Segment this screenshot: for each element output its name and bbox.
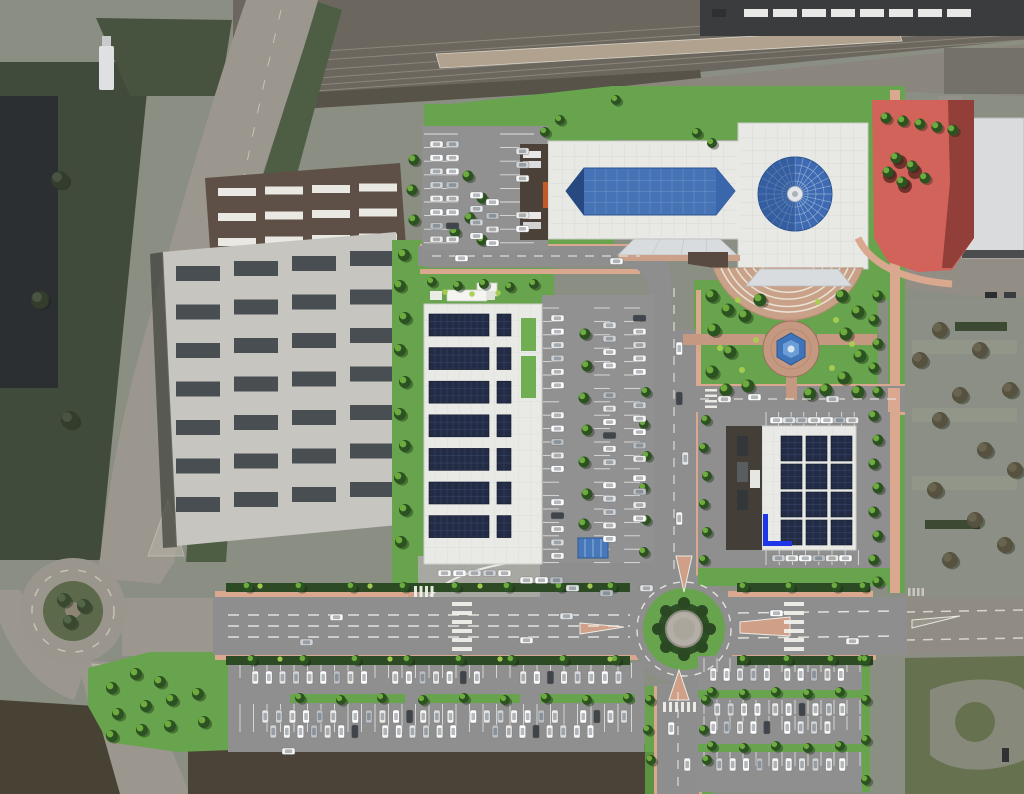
road-markings-xwalk	[669, 702, 672, 712]
bare-trees	[913, 353, 922, 362]
bare-trees	[1008, 463, 1017, 472]
vehicles-cars	[554, 413, 561, 417]
landscape-trees	[580, 329, 586, 335]
vehicles-cars	[489, 228, 496, 232]
landscape-circle	[788, 346, 795, 353]
green-lobe-trees	[141, 701, 148, 708]
garden-trees	[820, 384, 827, 391]
green-lobe-trees	[131, 669, 138, 676]
vehicles-cars	[606, 393, 613, 397]
vehicles-cars	[383, 728, 387, 735]
green-lobe-trees	[193, 689, 200, 696]
landscape-trees	[873, 291, 879, 297]
bare-trees	[968, 513, 977, 522]
landscape-trees	[862, 696, 868, 702]
landscape-trees	[898, 116, 904, 122]
buildings-rect	[737, 436, 748, 456]
vehicles-cars	[411, 728, 415, 735]
vehicles-cars	[485, 713, 489, 720]
bare-trees	[998, 538, 1007, 547]
vehicles-cars	[606, 510, 613, 514]
green-lobe-trees	[107, 731, 114, 738]
vehicles-cars	[773, 761, 777, 768]
satellite-ground-trees	[58, 594, 66, 602]
vehicles-cars	[812, 724, 816, 731]
vehicles-cars	[435, 713, 439, 720]
vehicles-cars	[434, 674, 438, 681]
vehicles-cars	[836, 418, 843, 422]
road-markings-xwalk	[705, 395, 717, 398]
vehicles-cars	[407, 674, 411, 681]
satellite-ground-xwalk	[917, 588, 920, 596]
vehicles-cars	[554, 316, 561, 320]
vehicles-cars	[433, 238, 440, 242]
landscape-trees	[530, 280, 536, 286]
sawtooth-roof-slots	[350, 405, 394, 420]
green-lobe-trees	[165, 721, 172, 728]
landscape-trees	[948, 125, 954, 131]
vehicles-cars	[381, 713, 385, 720]
landscape-trees	[612, 96, 618, 102]
vehicles-cars	[554, 514, 561, 518]
vehicles-cars	[473, 207, 480, 211]
crosswalk	[452, 620, 472, 624]
landscape-trees	[883, 167, 889, 173]
vehicles-cars	[765, 671, 769, 678]
vehicles-cars	[800, 761, 804, 768]
landscape-trees	[395, 409, 402, 416]
landscape-trees	[700, 726, 706, 732]
sawtooth-roof-slots	[292, 487, 336, 502]
vehicles-cars	[752, 671, 756, 678]
vehicles-cars	[677, 345, 681, 352]
trailer-row	[802, 9, 826, 17]
vehicles-cars	[433, 142, 440, 146]
vehicles-cars	[304, 713, 308, 720]
vehicles-cars	[606, 364, 613, 368]
vehicles-cars	[299, 728, 303, 735]
vehicles-cars	[554, 427, 561, 431]
vehicles-cars	[744, 761, 748, 768]
green-lobe-trees	[199, 717, 206, 724]
vehicles-cars	[785, 671, 789, 678]
buildings-rect	[430, 291, 442, 300]
bridge-truck	[99, 46, 114, 90]
vehicles-cars	[554, 357, 561, 361]
landscape-bushes	[735, 297, 741, 303]
vehicles-cars	[433, 170, 440, 174]
bare-trees	[973, 343, 982, 352]
vehicles-cars	[339, 728, 343, 735]
vehicles-cars	[636, 444, 643, 448]
garden-trees	[838, 372, 845, 379]
vehicles-cars	[267, 674, 271, 681]
buildings-rect	[737, 490, 748, 510]
vehicles-cars	[738, 724, 742, 731]
vehicles-cars	[449, 224, 456, 228]
garden-trees	[706, 366, 713, 373]
vehicles-cars	[606, 434, 613, 438]
sawtooth-roof-slots	[176, 305, 220, 320]
landscape-trees	[508, 656, 513, 662]
landscape-trees	[395, 345, 402, 352]
vehicles-cars	[606, 447, 613, 451]
landscape-trees	[337, 696, 343, 702]
landscape-trees	[862, 736, 868, 742]
garden-trees	[804, 388, 811, 395]
road-markings-xwalk	[425, 586, 428, 597]
vehicles-cars	[486, 571, 493, 575]
vehicles-cars	[321, 674, 325, 681]
landscape-bushes	[477, 583, 482, 588]
sawtooth-skylights	[312, 210, 350, 218]
landscape-trees	[862, 656, 868, 662]
vehicles-cars	[683, 455, 687, 462]
vehicles-cars	[554, 467, 561, 471]
landscape-trees	[644, 726, 650, 732]
roads-blobs	[696, 641, 708, 653]
vehicles-cars	[800, 706, 804, 713]
landscape-trees	[907, 161, 913, 167]
landscape-trees	[409, 215, 415, 221]
garden-trees	[724, 346, 731, 353]
landscape-trees	[407, 185, 413, 191]
vehicles-cars	[581, 713, 585, 720]
vehicles-cars	[499, 713, 503, 720]
vehicles-cars	[721, 397, 728, 401]
garden-trees	[708, 324, 715, 331]
landscape-trees	[804, 744, 810, 750]
landscape-trees	[296, 583, 302, 589]
vehicles-cars	[449, 713, 453, 720]
landscape-bushes	[495, 290, 501, 296]
vehicles-cars	[294, 674, 298, 681]
landscape-trees	[463, 171, 469, 177]
road-markings-xwalk	[705, 400, 717, 403]
sawtooth-roof-slots	[292, 372, 336, 387]
sawtooth-roof-slots	[176, 497, 220, 512]
garden-trees	[854, 350, 861, 357]
vehicles-cars	[785, 724, 789, 731]
vehicles-cars	[538, 578, 545, 582]
vehicles-cars	[331, 713, 335, 720]
landscape-bushes	[497, 656, 502, 661]
vehicles-cars	[353, 728, 357, 735]
vehicles-cars	[554, 330, 561, 334]
satellite-ground-rect	[912, 408, 1017, 422]
vehicles-cars	[606, 350, 613, 354]
vehicles-cars	[449, 142, 456, 146]
landscape-trees	[556, 116, 562, 122]
landscape-trees	[454, 282, 460, 288]
vehicles-cars	[441, 571, 448, 575]
sawtooth-roof-slots	[234, 261, 278, 276]
landscape-bushes	[815, 299, 821, 305]
landscape-rect	[737, 583, 870, 592]
vehicles-cars	[849, 639, 856, 643]
vehicles-cars	[397, 728, 401, 735]
vehicles-cars	[489, 241, 496, 245]
vehicles-cars	[711, 671, 715, 678]
garden-trees	[840, 328, 847, 335]
vehicles-cars	[362, 674, 366, 681]
vehicles-cars	[799, 671, 803, 678]
landscape-trees	[296, 694, 302, 700]
landscape-trees	[404, 656, 410, 662]
trailer-row	[860, 9, 884, 17]
vehicles-cars	[815, 556, 822, 560]
landscape-trees	[869, 507, 875, 513]
sawtooth-skylights	[218, 213, 256, 221]
landscape-trees	[869, 555, 875, 561]
vehicles-cars	[636, 476, 643, 480]
garden-trees	[706, 290, 713, 297]
satellite-ground-trees	[64, 616, 72, 624]
vehicles-cars	[606, 420, 613, 424]
vehicles-cars	[326, 728, 330, 735]
vehicles-cars	[554, 541, 561, 545]
landscape-trees	[836, 742, 842, 748]
landscape-bushes	[277, 656, 282, 661]
landscape-bushes	[607, 656, 612, 661]
landscape-trees	[772, 688, 778, 694]
road-markings-xwalk	[681, 702, 684, 712]
landscape-trees	[700, 500, 706, 506]
bare-trees	[943, 553, 952, 562]
landscape-trees	[399, 250, 406, 257]
landscape-trees	[582, 489, 588, 495]
sawtooth-roof-slots	[234, 492, 278, 507]
satellite-ground-trees	[62, 412, 72, 422]
vehicles-cars	[312, 728, 316, 735]
landscape-bushes	[717, 345, 723, 351]
satellite-ground-rect	[955, 322, 1007, 331]
vehicles-cars	[562, 674, 566, 681]
landscape-trees	[920, 173, 926, 179]
landscape-bushes	[469, 291, 475, 297]
vehicles-cars	[353, 713, 357, 720]
vehicles-cars	[711, 724, 715, 731]
vehicles-cars	[449, 197, 456, 201]
landscape-trees	[700, 444, 706, 450]
satellite-ground-xwalk	[908, 588, 911, 596]
vehicles-cars	[548, 728, 552, 735]
vehicles-cars	[839, 671, 843, 678]
garden-trees	[852, 386, 859, 393]
landscape-trees	[702, 416, 708, 422]
vehicles-cars	[814, 706, 818, 713]
vehicles-cars	[554, 440, 561, 444]
crosswalk	[452, 638, 472, 642]
sawtooth-roof-slots	[176, 343, 220, 358]
garden-trees	[836, 290, 843, 297]
green-lobe-trees	[167, 695, 174, 702]
landscape-trees	[378, 694, 384, 700]
landscape-trees	[624, 694, 630, 700]
vehicles-cars	[449, 170, 456, 174]
sawtooth-skylights	[265, 187, 303, 195]
landscape-trees	[400, 377, 407, 384]
sawtooth-roof-slots	[350, 290, 394, 305]
satellite-ground-rect	[962, 250, 1024, 258]
landscape-trees	[828, 656, 834, 662]
parking-lots-rect	[862, 656, 870, 792]
landscape-bushes	[442, 289, 448, 295]
landscape-trees	[248, 656, 254, 662]
buildings-rect	[487, 291, 495, 300]
satellite-ground-rect	[912, 340, 1017, 354]
vehicles-cars	[473, 193, 480, 197]
landscape-trees	[873, 339, 879, 345]
vehicles-cars	[333, 615, 340, 619]
vehicles-cars	[554, 343, 561, 347]
vehicles-cars	[669, 725, 673, 732]
landscape-trees	[579, 457, 585, 463]
trailer-row	[831, 9, 855, 17]
landscape-trees	[244, 583, 250, 589]
landscape-trees	[419, 696, 425, 702]
vehicles-cars	[742, 706, 746, 713]
vehicles-cars	[826, 671, 830, 678]
vehicles-cars	[773, 418, 780, 422]
garden-trees	[754, 294, 761, 301]
roads-circle	[673, 618, 695, 640]
vehicles-cars	[636, 330, 643, 334]
vehicles-cars	[253, 674, 257, 681]
pedestrian-paths-rect	[420, 269, 640, 274]
crosswalk	[784, 638, 804, 642]
landscape-trees	[703, 756, 709, 762]
vehicles-cars	[473, 221, 480, 225]
vehicles-cars	[826, 724, 830, 731]
landscape-bushes	[753, 337, 759, 343]
landscape-trees	[642, 388, 648, 394]
vehicles-cars	[433, 156, 440, 160]
vehicles-cars	[798, 418, 805, 422]
vehicles-cars	[458, 256, 465, 260]
vehicles-cars	[829, 397, 836, 401]
landscape-rect	[683, 334, 765, 345]
trailer-row	[918, 9, 942, 17]
sawtooth-skylights	[359, 209, 397, 217]
garden-trees	[739, 310, 746, 317]
vehicles-cars	[433, 224, 440, 228]
vehicles-cars	[335, 674, 339, 681]
vehicles-cars	[606, 537, 613, 541]
landscape-trees	[869, 363, 875, 369]
vehicles-cars	[575, 728, 579, 735]
vehicles-cars	[827, 706, 831, 713]
bare-trees	[933, 323, 942, 332]
landscape-trees	[352, 656, 358, 662]
sawtooth-skylights	[218, 188, 256, 196]
landscape-trees	[465, 213, 471, 219]
road-markings-xwalk	[705, 389, 717, 392]
trailer-row	[773, 9, 797, 17]
road-markings-xwalk	[687, 702, 690, 712]
roads-blobs	[660, 605, 672, 617]
landscape-trees	[579, 519, 585, 525]
existing-road-bottom-right	[905, 597, 1024, 655]
road-markings-xwalk	[705, 406, 717, 409]
landscape-trees	[881, 113, 887, 119]
vehicles-cars	[677, 395, 681, 402]
vehicles-cars	[421, 674, 425, 681]
landscape-trees	[300, 656, 306, 662]
sawtooth-roof-slots	[234, 454, 278, 469]
landscape-trees	[784, 656, 790, 662]
vehicles-cars	[827, 761, 831, 768]
landscape-trees	[396, 537, 403, 544]
sawtooth-roof-slots	[176, 420, 220, 435]
vehicles-cars	[493, 728, 497, 735]
vehicles-cars	[677, 515, 681, 522]
sawtooth-roof-slots	[292, 449, 336, 464]
vehicles-cars	[367, 713, 371, 720]
satellite-ground-rect	[712, 9, 726, 17]
vehicles-cars	[408, 713, 412, 720]
vehicles-cars	[291, 713, 295, 720]
delivery-truck	[447, 290, 487, 301]
vehicles-cars	[554, 370, 561, 374]
landscape-trees	[428, 278, 434, 284]
vehicles-cars	[521, 674, 525, 681]
vehicles-cars	[636, 403, 643, 407]
vehicles-cars	[606, 337, 613, 341]
vehicles-cars	[606, 323, 613, 327]
landscape-trees	[460, 694, 466, 700]
vehicles-cars	[643, 586, 650, 590]
bare-trees	[1003, 383, 1012, 392]
landscape-trees	[646, 696, 652, 702]
bare-trees	[953, 388, 962, 397]
landscape-trees	[647, 756, 653, 762]
landscape-trees	[541, 128, 547, 134]
buildings-rect	[737, 462, 748, 482]
vehicles-cars	[775, 556, 782, 560]
sawtooth-roof-slots	[176, 459, 220, 474]
sawtooth-roof-slots	[292, 333, 336, 348]
landscape-trees	[702, 696, 708, 702]
vehicles-cars	[449, 210, 456, 214]
satellite-ground-trees	[52, 172, 62, 182]
road-markings-xwalk	[675, 702, 678, 712]
garden-trees	[722, 304, 729, 311]
vehicles-cars	[828, 556, 835, 560]
aerial-site-plan-view	[0, 0, 1024, 794]
landscape-trees	[786, 583, 792, 589]
sawtooth-roof-slots	[350, 328, 394, 343]
bare-trees	[928, 483, 937, 492]
vehicles-cars	[613, 259, 620, 263]
vehicles-cars	[731, 761, 735, 768]
green-lobe-trees	[137, 725, 144, 732]
landscape-trees	[915, 119, 921, 125]
landscape-trees	[740, 583, 746, 589]
buildings-circle	[792, 191, 798, 197]
crosswalk	[784, 602, 804, 606]
landscape-trees	[348, 583, 354, 589]
landscape-trees	[400, 505, 407, 512]
vehicles-cars	[787, 706, 791, 713]
landscape-trees	[506, 283, 512, 289]
vehicles-cars	[636, 343, 643, 347]
landscape-trees	[395, 473, 402, 480]
vehicles-cars	[802, 556, 809, 560]
vehicles-cars	[449, 238, 456, 242]
vehicles-cars	[449, 183, 456, 187]
road-markings-xwalk	[693, 702, 696, 712]
